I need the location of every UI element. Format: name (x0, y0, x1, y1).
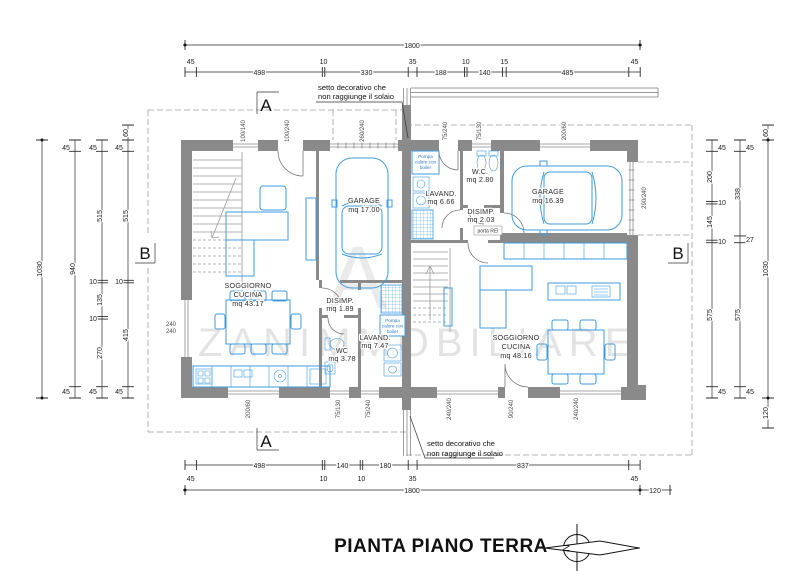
opening-label: 240/240 (447, 398, 453, 420)
dim-label: 45 (115, 389, 123, 396)
page-title: PIANTA PIANO TERRA (334, 536, 548, 557)
dim-label: 120 (763, 407, 770, 419)
opening-label: 100/240 (285, 120, 291, 142)
room-area: mq 2.03 (467, 215, 494, 224)
dim-label: 45 (746, 145, 754, 152)
dim-label: 515 (97, 210, 104, 222)
heat-pump-label: calore con (415, 160, 437, 165)
section-marker-b-left: B (139, 244, 150, 263)
dim-label: 415 (123, 329, 130, 341)
dim-label: 1030 (37, 261, 44, 277)
dim-label: 45 (631, 59, 639, 66)
dimension-chains-right: 45 200 10 145 10 575 45 45 338 27 575 45… (706, 125, 774, 428)
dim-label: 485 (562, 70, 574, 77)
kitchen-counter-right (504, 243, 627, 300)
floor-plan-canvas: A ZANIMMOBILIARE (0, 0, 800, 571)
room-area: mq 7.47 (361, 341, 388, 350)
shower-right (412, 210, 433, 239)
dim-label: 10 (718, 200, 726, 207)
dim-label: 35 (409, 59, 417, 66)
dim-label: 10 (462, 59, 470, 66)
dim-label: 45 (115, 145, 123, 152)
dim-label: 1030 (763, 261, 770, 277)
section-marker-b-right: B (672, 244, 683, 263)
armchair (260, 186, 286, 210)
dim-top-total: 1800 (404, 43, 420, 50)
room-area: mq 48.16 (500, 351, 532, 360)
heat-pump-label: Pompa (418, 154, 433, 159)
dimension-chain-top: 1800 45 10 35 10 15 45 498 330 188 140 4… (183, 40, 642, 77)
dim-label: 10 (320, 59, 328, 66)
staircase-left (193, 152, 242, 288)
room-area: mq 1.89 (326, 304, 353, 313)
room-garage-right: GARAGE (532, 187, 564, 196)
dim-label: 45 (62, 389, 70, 396)
dim-label: 45 (746, 389, 754, 396)
opening-label: 90/240 (509, 399, 515, 418)
kitchen-island (548, 283, 620, 300)
north-compass: N (543, 524, 640, 571)
opening-label: 290/240 (642, 187, 648, 209)
dim-label: 27 (746, 237, 754, 244)
dim-bottom-total: 1800 (404, 488, 420, 495)
room-area: mq 6.66 (427, 197, 454, 206)
opening-label: 75/240 (443, 121, 449, 140)
opening-label: 240 (166, 329, 177, 335)
opening-label: 75/130 (477, 121, 483, 140)
sofa-right (480, 266, 532, 328)
tv-sideboard (306, 198, 316, 260)
dim-label: 145 (707, 216, 714, 228)
dim-label: 45 (718, 389, 726, 396)
dim-label: 837 (517, 463, 529, 470)
annotation-setto-bottom: setto decorativo che non raggiunge il so… (410, 416, 503, 458)
title-block: PIANTA PIANO TERRA N (334, 524, 640, 571)
heat-pump-label: calore con (382, 324, 404, 329)
dim-label: 575 (707, 309, 714, 321)
dim-label: 60 (763, 129, 770, 137)
annotation-line: setto decorativo che (318, 83, 386, 92)
annotation-line: non raggiunge il solaio (318, 92, 394, 101)
opening-label: 200/60 (562, 121, 568, 140)
dim-label: 140 (337, 463, 349, 470)
room-area: mq 3.78 (328, 354, 355, 363)
sofa-left (226, 212, 288, 276)
opening-label: 240 (166, 322, 177, 328)
north-letter: N (560, 544, 571, 551)
section-marker-a-top: A (260, 96, 272, 115)
opening-label: 100/140 (241, 120, 247, 142)
room-area: mq 16.39 (532, 196, 564, 205)
opening-label: 260/240 (360, 120, 366, 142)
porta-rei-label: porta REI (477, 229, 498, 235)
dim-label: 10 (115, 279, 123, 286)
dim-label: 45 (89, 389, 97, 396)
section-marker-a-bottom: A (260, 432, 272, 451)
dim-label: 338 (735, 188, 742, 200)
opening-label: 240/240 (574, 398, 580, 420)
watermark-text: ZANIMMOBILIARE (198, 321, 638, 365)
dim-label: 35 (409, 476, 417, 483)
opening-label: 75/240 (366, 399, 372, 418)
heat-pump-label: boiler (420, 165, 432, 170)
heat-pump-label: Pompa (385, 318, 400, 323)
dim-label: 15 (500, 59, 508, 66)
opening-label: 75/130 (336, 399, 342, 418)
dim-label: 498 (253, 70, 265, 77)
north-arrow (545, 541, 639, 555)
room-label: CUCINA (234, 290, 263, 299)
dim-label: 10 (358, 476, 366, 483)
dim-label: 10 (89, 279, 97, 286)
dim-label: 575 (735, 309, 742, 321)
room-area: mq 2.80 (466, 175, 493, 184)
dim-label: 188 (435, 70, 447, 77)
annotation-line: setto decorativo che (427, 439, 495, 448)
kitchen-counter-left (193, 366, 330, 387)
dim-label: 10 (320, 476, 328, 483)
dim-label: 45 (89, 145, 97, 152)
dim-label: 940 (70, 263, 77, 275)
dimension-chain-bottom: 498 140 180 837 45 10 10 35 45 1800 120 (183, 460, 672, 495)
dim-label: 60 (123, 129, 130, 137)
dim-label: 270 (97, 347, 104, 359)
annotation-line: non raggiunge il solaio (427, 449, 503, 458)
dim-label: 200 (707, 171, 714, 183)
dim-label: 140 (479, 70, 491, 77)
dimension-chains-left: 1030 45 940 45 45 515 10 135 10 270 45 6… (36, 125, 134, 400)
room-soggiorno-right: SOGGIORNO (493, 333, 540, 342)
shower-left (381, 285, 402, 313)
dim-label: 45 (62, 145, 70, 152)
room-garage-left: GARAGE (348, 196, 380, 205)
dim-label: 330 (361, 70, 373, 77)
room-label: CUCINA (502, 342, 531, 351)
dim-label: 135 (97, 294, 104, 306)
dim-label: 45 (718, 145, 726, 152)
dim-label: 45 (631, 476, 639, 483)
dim-label: 45 (187, 59, 195, 66)
dim-label: 10 (89, 316, 97, 323)
dim-label: 515 (123, 210, 130, 222)
car-right (512, 161, 622, 235)
opening-label: 200/60 (246, 399, 252, 418)
dim-label: 45 (187, 476, 195, 483)
room-soggiorno-left: SOGGIORNO (225, 281, 272, 290)
room-area: mq 17.00 (348, 205, 380, 214)
dim-label: 10 (718, 239, 726, 246)
dim-label: 180 (380, 463, 392, 470)
floor-plan-svg: A ZANIMMOBILIARE (0, 0, 800, 571)
dim-label: 498 (253, 463, 265, 470)
dim-bottom-ext: 120 (649, 488, 661, 495)
heat-pump-label: boiler (387, 329, 399, 334)
room-area: mq 43.17 (232, 299, 264, 308)
